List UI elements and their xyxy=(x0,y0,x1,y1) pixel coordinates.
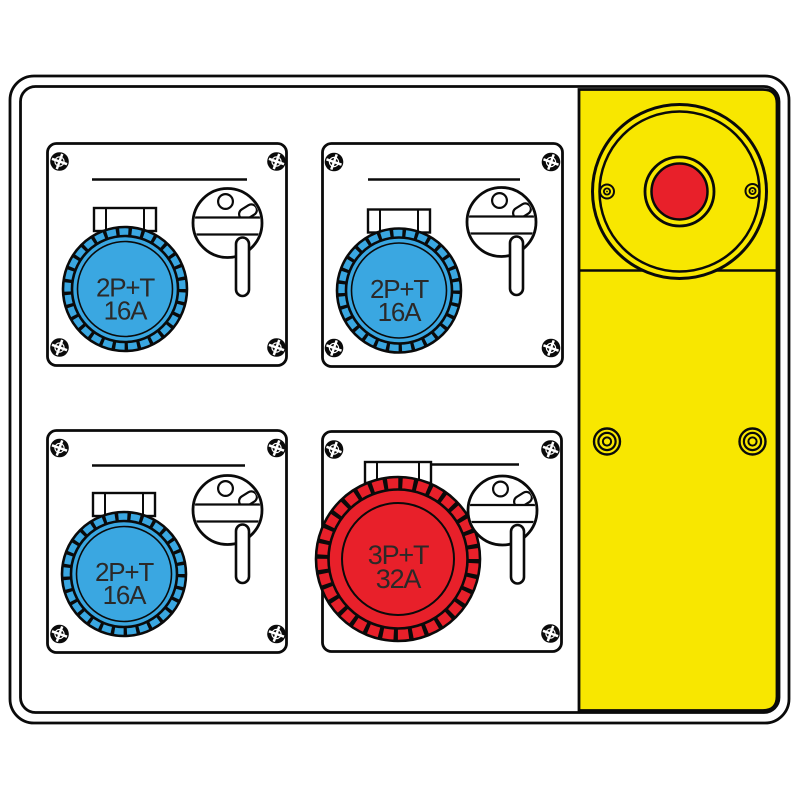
socket-rating-label: 16A xyxy=(104,296,149,326)
emergency-stop-button[interactable] xyxy=(593,105,767,279)
socket-rating-label: 32A xyxy=(376,564,422,594)
socket-rating-label: 16A xyxy=(378,297,423,327)
distribution-board-illustration: 2P+T 16A 2P+T 16A 2P+T 16A 3P+T xyxy=(0,0,800,800)
socket-rating-label: 16A xyxy=(103,580,148,610)
socket-module-bottom-left: 2P+T 16A xyxy=(48,431,287,653)
estop-actuator[interactable] xyxy=(652,164,708,220)
socket-module-top-left: 2P+T 16A xyxy=(48,144,287,366)
socket-module-top-right: 2P+T 16A xyxy=(323,144,563,367)
board-drawing: 2P+T 16A 2P+T 16A 2P+T 16A 3P+T xyxy=(0,0,800,800)
emergency-stop-panel xyxy=(579,90,777,711)
socket-module-bottom-right: 3P+T 32A xyxy=(316,432,562,652)
